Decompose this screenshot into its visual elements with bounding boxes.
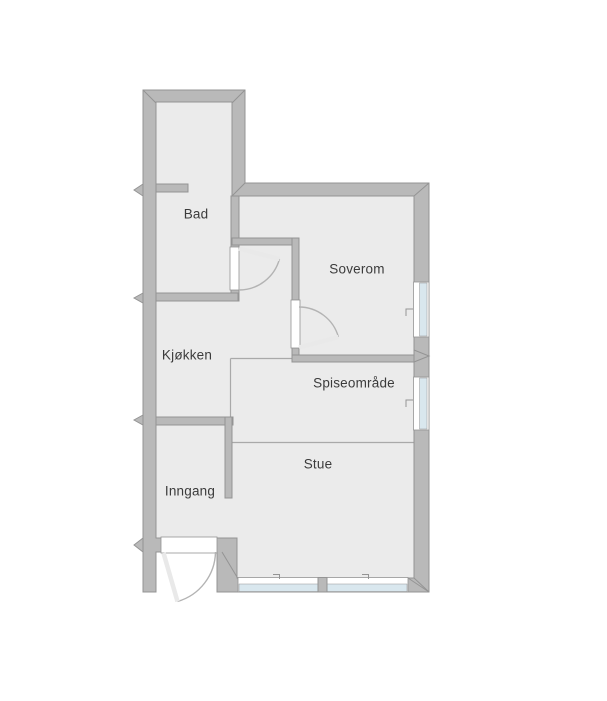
window-soverom xyxy=(414,282,430,337)
bad-bottom-wall xyxy=(156,293,238,301)
notch-bad-stub xyxy=(134,184,143,196)
window-mullion xyxy=(318,578,327,593)
room-label-kjokken: Kjøkken xyxy=(162,348,212,363)
room-label-spiseomrade: Spiseområde xyxy=(313,376,395,391)
floor-plan-drawing xyxy=(0,0,607,701)
floor-plan-page: Bad Soverom Kjøkken Spiseområde Stue Inn… xyxy=(0,0,607,701)
room-label-bad: Bad xyxy=(184,207,209,222)
notch-bad-bottom xyxy=(134,293,143,303)
soverom-bottom-wall xyxy=(292,355,429,362)
room-label-soverom: Soverom xyxy=(329,262,384,277)
floor-area xyxy=(156,102,414,578)
inngang-top-wall xyxy=(156,417,233,425)
notch-inngang-top xyxy=(134,415,143,425)
inngang-stue-divider-wall xyxy=(225,417,232,498)
hall-wall xyxy=(232,238,299,245)
room-label-inngang: Inngang xyxy=(165,484,215,499)
room-label-stue: Stue xyxy=(304,457,333,472)
notch-inngang-bottom xyxy=(134,538,143,552)
soverom-west-wall-upper xyxy=(292,238,299,300)
door-entrance xyxy=(161,537,217,602)
window-spiseomrade xyxy=(414,377,430,430)
window-stue xyxy=(238,578,408,593)
